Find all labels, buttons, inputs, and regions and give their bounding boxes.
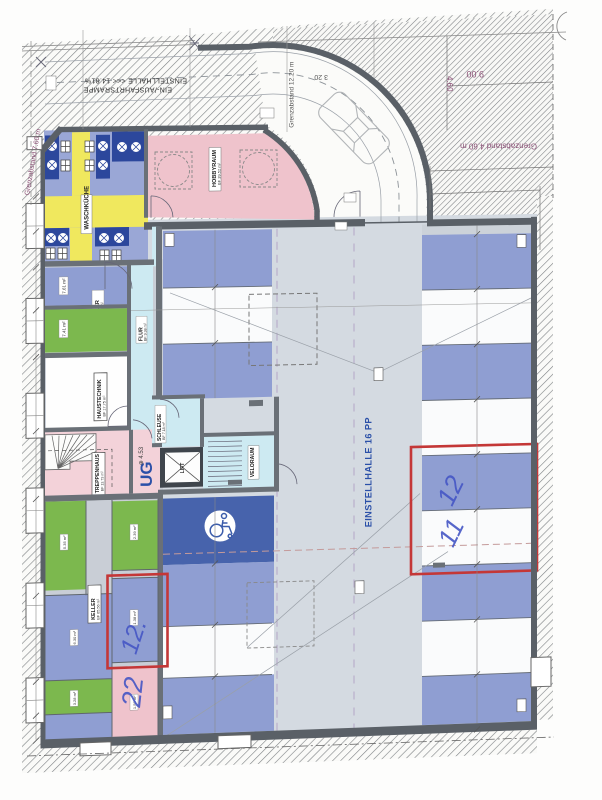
svg-text:2.39 m²: 2.39 m² bbox=[132, 525, 137, 539]
svg-text:BF 17.75 m²: BF 17.75 m² bbox=[103, 395, 107, 417]
svg-text:7.61 m²: 7.61 m² bbox=[62, 278, 67, 294]
svg-text:4.60: 4.60 bbox=[445, 76, 454, 92]
svg-text:Grenzabstand 12.20 m: Grenzabstand 12.20 m bbox=[289, 62, 296, 128]
svg-text:WASCHKÜCHE: WASCHKÜCHE bbox=[84, 186, 91, 230]
svg-text:EINSTELLHALLE <<< 14.81%: EINSTELLHALLE <<< 14.81% bbox=[85, 76, 187, 83]
svg-text:5.35 m²: 5.35 m² bbox=[62, 535, 67, 549]
svg-text:BF 13.73 m²: BF 13.73 m² bbox=[101, 471, 105, 492]
svg-text:22: 22 bbox=[116, 676, 149, 710]
svg-text:Grenzabstand 4.60 m: Grenzabstand 4.60 m bbox=[460, 142, 537, 151]
svg-text:⊕ 4.53: ⊕ 4.53 bbox=[139, 446, 145, 465]
svg-text:BF 39.52 m²: BF 39.52 m² bbox=[217, 162, 222, 185]
svg-text:3.28 m²: 3.28 m² bbox=[72, 691, 77, 705]
svg-text:7.41 m²: 7.41 m² bbox=[62, 321, 67, 337]
svg-text:9.00: 9.00 bbox=[466, 69, 484, 79]
svg-text:EIN-/AUSFAHRTSRAMPE: EIN-/AUSFAHRTSRAMPE bbox=[84, 85, 172, 92]
svg-text:LIFT: LIFT bbox=[180, 463, 186, 474]
svg-text:6.30 m²: 6.30 m² bbox=[72, 630, 77, 644]
svg-text:3 20: 3 20 bbox=[314, 73, 328, 80]
svg-text:BF 9.38 m²: BF 9.38 m² bbox=[144, 322, 148, 341]
svg-text:VELORAUM: VELORAUM bbox=[250, 448, 256, 478]
svg-text:BF 65.56 m²: BF 65.56 m² bbox=[97, 598, 101, 620]
svg-text:EINSTELLHALLE 16 PP: EINSTELLHALLE 16 PP bbox=[364, 417, 374, 527]
svg-text:BF 7.18 m²: BF 7.18 m² bbox=[162, 421, 166, 440]
